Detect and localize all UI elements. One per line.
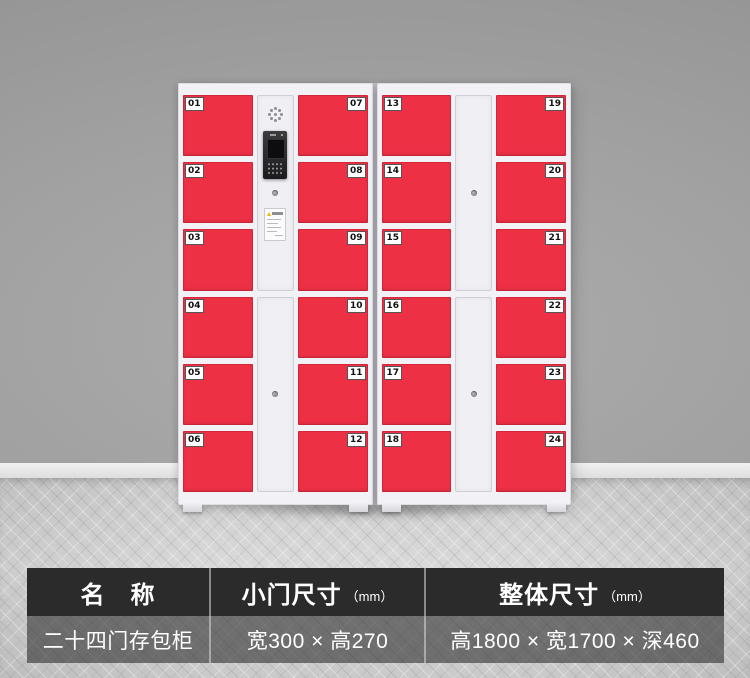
door-number-label: 24 (545, 433, 564, 447)
door-number-label: 17 (384, 366, 403, 380)
spec-table: 名 称 小门尺寸 （mm） 整体尺寸 （mm） 二十四门存包柜 宽300 × 高… (27, 568, 724, 663)
door-number-label: 21 (545, 231, 564, 245)
door-number-label: 07 (347, 97, 366, 111)
door-number-label: 23 (545, 366, 564, 380)
cabinet-foot (349, 504, 368, 512)
spec-header-overall-size-text: 整体尺寸 (499, 575, 599, 610)
service-column (455, 95, 492, 492)
terminal-screen (267, 139, 285, 159)
locker-door-05: 05 (183, 364, 253, 425)
spec-value-name: 二十四门存包柜 (27, 616, 209, 663)
spec-header-name-text: 名 称 (81, 575, 156, 610)
door-number-label: 02 (185, 164, 204, 178)
control-panel-door (257, 95, 294, 291)
door-number-label: 18 (384, 433, 403, 447)
door-column-13-18: 13 14 15 16 17 18 (382, 95, 452, 492)
locker-door-18: 18 (382, 431, 452, 492)
locker-door-16: 16 (382, 297, 452, 358)
warning-label (264, 208, 286, 241)
warning-icon (267, 212, 271, 216)
door-number-label: 20 (545, 164, 564, 178)
spec-header-door-size-unit: （mm） (346, 580, 394, 605)
product-photo-scene: 01 02 03 04 05 06 (0, 0, 750, 678)
door-number-label: 13 (384, 97, 403, 111)
service-door (455, 95, 492, 291)
spec-header-overall-size: 整体尺寸 （mm） (424, 568, 724, 616)
speaker-icon (274, 113, 277, 116)
locker-door-20: 20 (496, 162, 566, 223)
locker-door-02: 02 (183, 162, 253, 223)
cabinet-foot (382, 504, 401, 512)
door-number-label: 05 (185, 366, 204, 380)
spec-value-overall-size: 高1800 × 宽1700 × 深460 (424, 616, 724, 663)
service-door (455, 297, 492, 493)
spec-header-door-size-text: 小门尺寸 (242, 575, 342, 610)
keypad-icon (267, 162, 283, 175)
locker-door-07: 07 (298, 95, 368, 156)
keyhole-icon (471, 391, 477, 397)
service-door (257, 297, 294, 493)
spec-header-door-size: 小门尺寸 （mm） (209, 568, 424, 616)
keyhole-icon (272, 190, 278, 196)
locker-unit: 01 02 03 04 05 06 (178, 83, 571, 505)
spec-header-overall-size-unit: （mm） (603, 580, 651, 605)
door-number-label: 10 (347, 299, 366, 313)
locker-door-04: 04 (183, 297, 253, 358)
locker-door-09: 09 (298, 229, 368, 290)
door-number-label: 01 (185, 97, 204, 111)
locker-door-24: 24 (496, 431, 566, 492)
control-column (257, 95, 294, 492)
locker-door-10: 10 (298, 297, 368, 358)
door-number-label: 08 (347, 164, 366, 178)
locker-door-12: 12 (298, 431, 368, 492)
door-number-label: 04 (185, 299, 204, 313)
locker-door-13: 13 (382, 95, 452, 156)
locker-door-11: 11 (298, 364, 368, 425)
door-column-19-24: 19 20 21 22 23 24 (496, 95, 566, 492)
locker-door-23: 23 (496, 364, 566, 425)
locker-door-17: 17 (382, 364, 452, 425)
locker-door-19: 19 (496, 95, 566, 156)
locker-door-14: 14 (382, 162, 452, 223)
door-number-label: 22 (545, 299, 564, 313)
locker-cabinet-2: 13 14 15 16 17 18 19 20 21 22 23 (377, 83, 572, 505)
door-number-label: 03 (185, 231, 204, 245)
locker-door-03: 03 (183, 229, 253, 290)
locker-door-06: 06 (183, 431, 253, 492)
door-column-01-06: 01 02 03 04 05 06 (183, 95, 253, 492)
door-number-label: 12 (347, 433, 366, 447)
door-number-label: 19 (545, 97, 564, 111)
camera-icon (281, 134, 283, 136)
door-number-label: 06 (185, 433, 204, 447)
keyhole-icon (272, 391, 278, 397)
spec-value-door-size: 宽300 × 高270 (209, 616, 424, 663)
door-number-label: 11 (347, 366, 366, 380)
locker-door-08: 08 (298, 162, 368, 223)
keyhole-icon (471, 190, 477, 196)
door-number-label: 14 (384, 164, 403, 178)
control-terminal (263, 131, 287, 179)
cabinet-foot (183, 504, 202, 512)
door-number-label: 15 (384, 231, 403, 245)
locker-cabinet-1: 01 02 03 04 05 06 (178, 83, 373, 505)
locker-door-21: 21 (496, 229, 566, 290)
spec-header-name: 名 称 (27, 568, 209, 616)
terminal-slit (270, 134, 276, 136)
locker-door-22: 22 (496, 297, 566, 358)
door-column-07-12: 07 08 09 10 11 12 (298, 95, 368, 492)
cabinet-foot (547, 504, 566, 512)
door-number-label: 09 (347, 231, 366, 245)
locker-door-01: 01 (183, 95, 253, 156)
locker-door-15: 15 (382, 229, 452, 290)
door-number-label: 16 (384, 299, 403, 313)
